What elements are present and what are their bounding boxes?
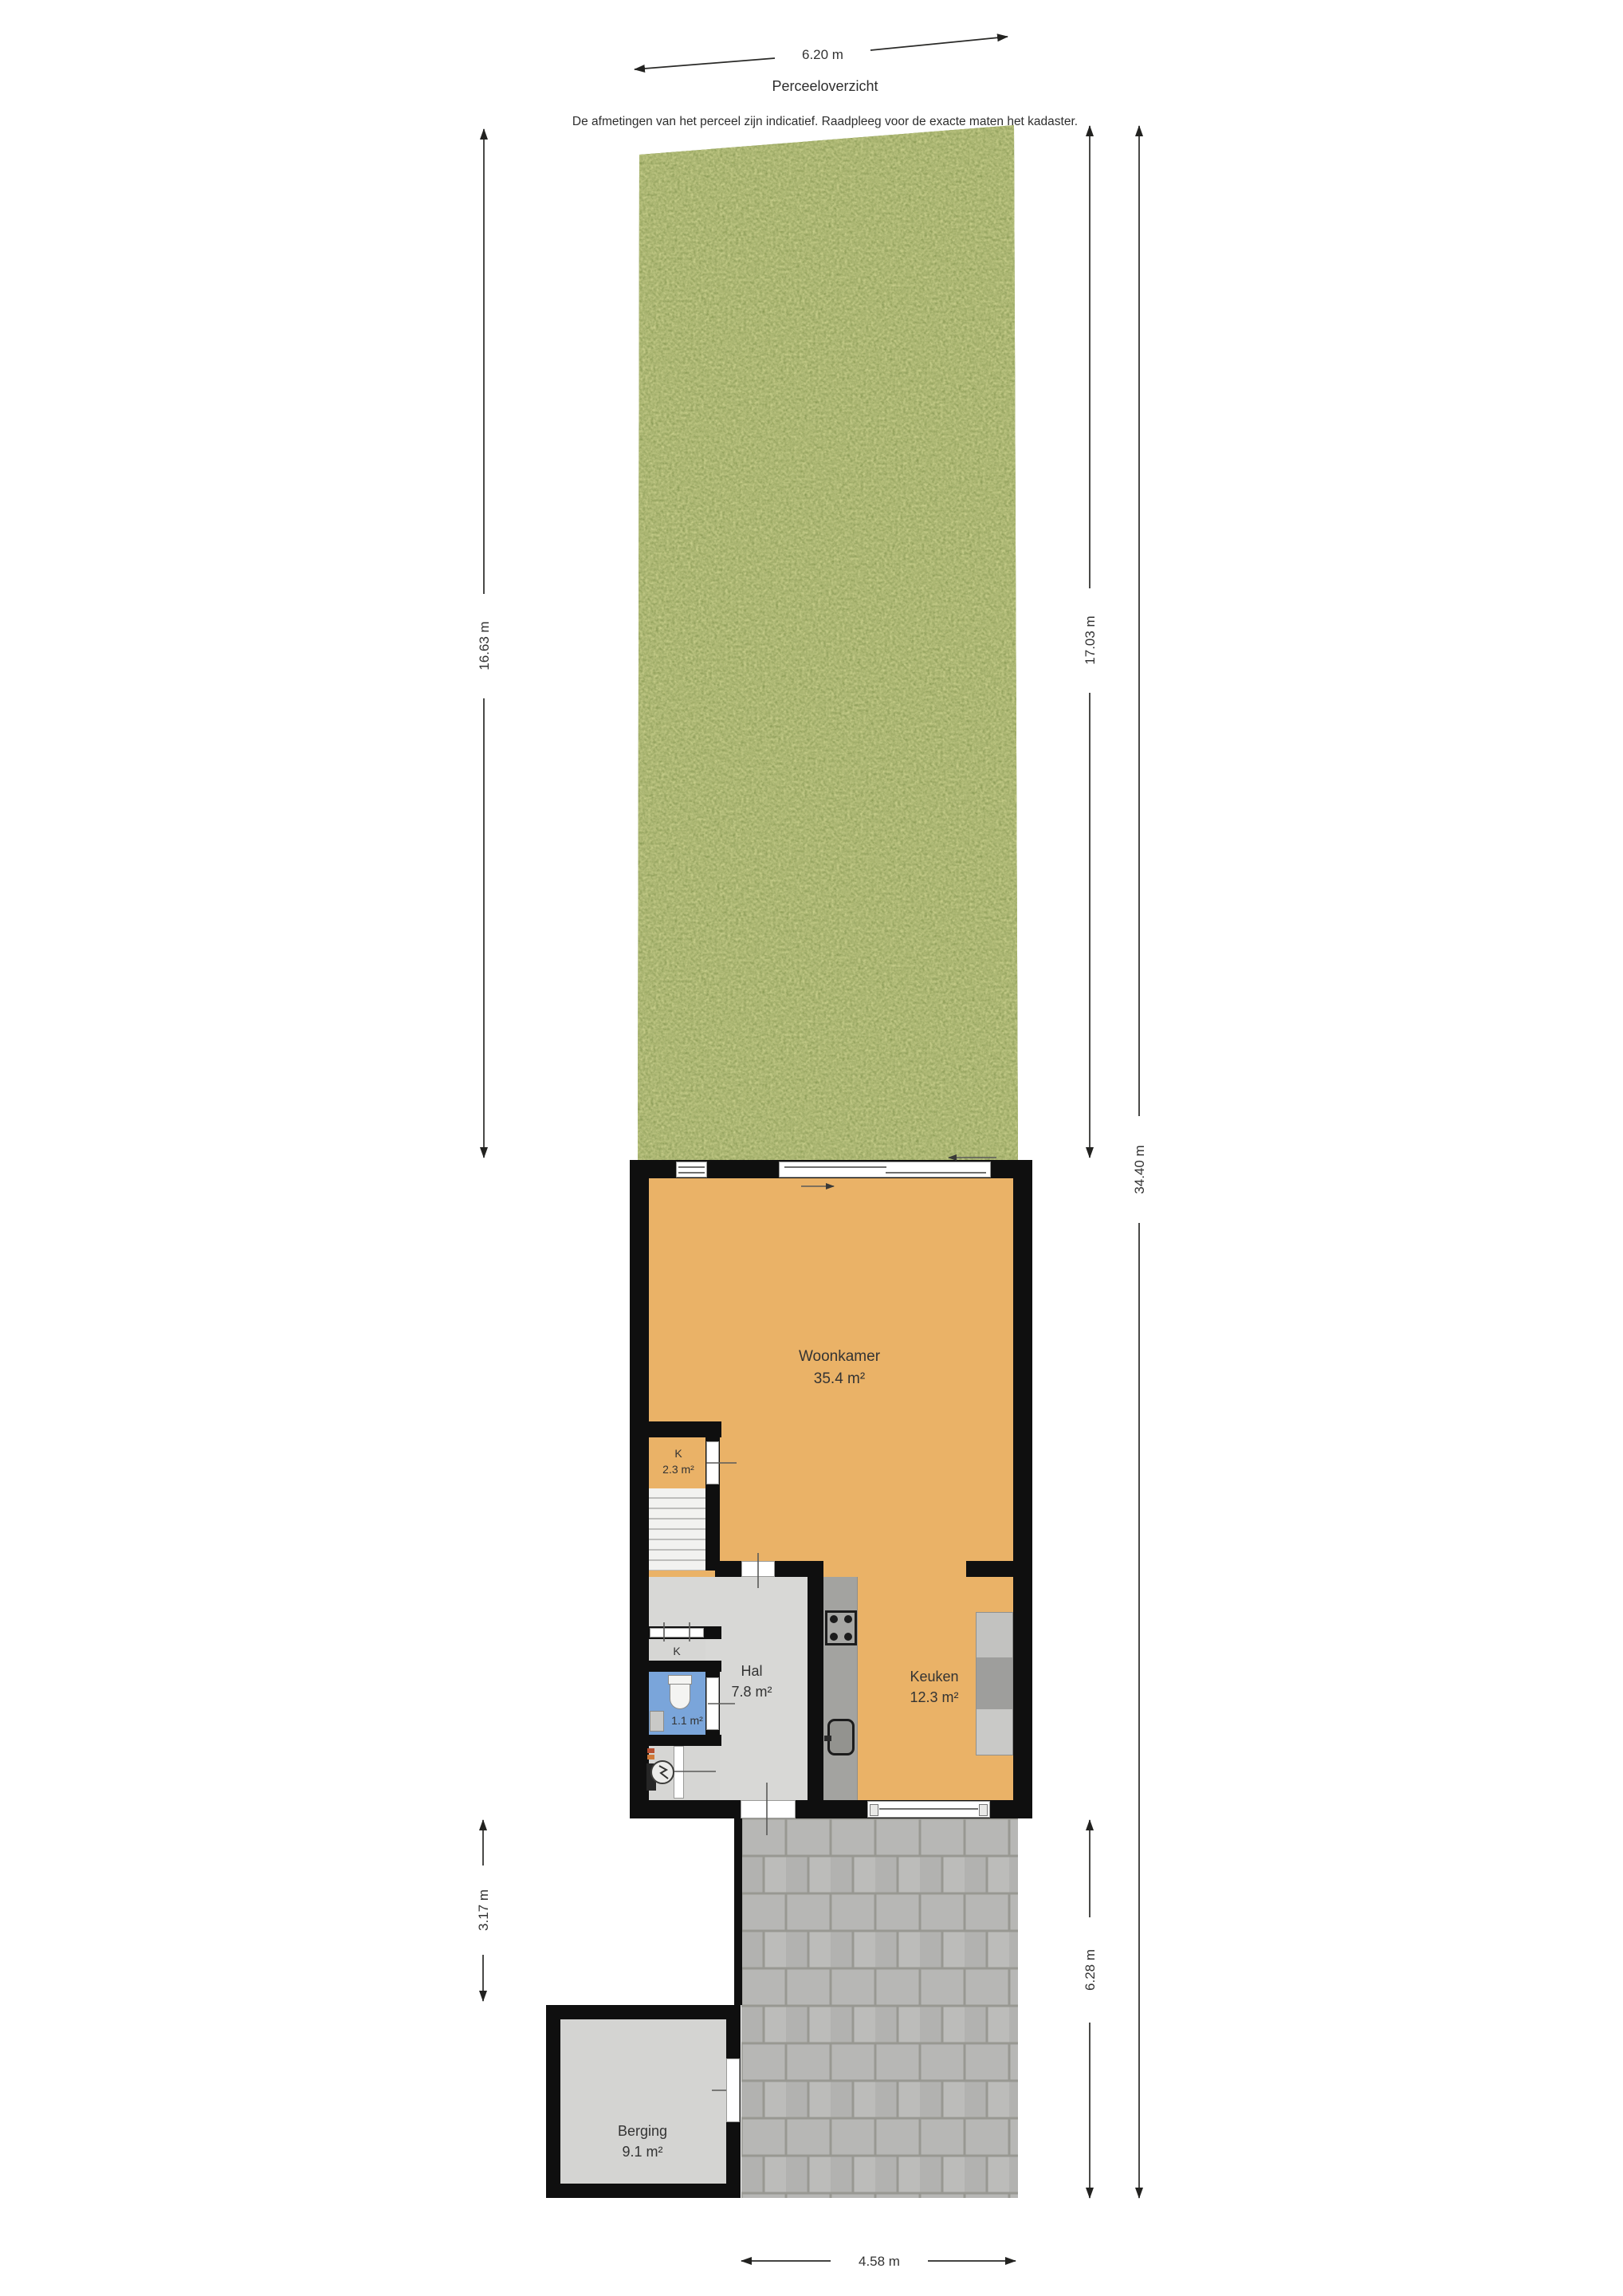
ground-layer [0,0,1623,2296]
closet-upper-area: 2.3 m² [646,1461,710,1477]
living-hall-wall-seg1 [715,1561,741,1577]
rear-window [676,1162,707,1177]
keuken-area: 12.3 m² [870,1687,998,1708]
keuken-name: Keuken [870,1666,998,1687]
disclaimer-text: De afmetingen van het perceel zijn indic… [426,115,1224,129]
closet-lower-doors [650,1628,704,1637]
hal-keuken-divider-wall [808,1561,823,1800]
closet-upper-name: K [646,1445,710,1461]
front-window [867,1801,990,1818]
living-kitchen-wall-stub [966,1561,1032,1577]
passage-boundary-wall [734,1818,742,2005]
berging-name: Berging [563,2121,722,2141]
rear-window-frame-line2 [678,1172,705,1174]
woonkamer-area: 35.4 m² [720,1368,959,1390]
front-window-cap-right [979,1804,988,1816]
toilet-label: 1.1 m² [658,1712,716,1728]
terrace-paving [741,1818,1018,2198]
burner [830,1615,838,1623]
closet-upper-label: K 2.3 m² [646,1445,710,1478]
front-window-cap-left [870,1804,878,1816]
meter-marker-orange [647,1755,654,1759]
toilet-meter-wall [630,1735,721,1746]
closet-lower-name: K [653,1643,701,1659]
burner [844,1633,852,1641]
stove-icon [825,1610,857,1645]
woonkamer-label: Woonkamer 35.4 m² [720,1346,959,1390]
burner [830,1633,838,1641]
hal-name: Hal [696,1661,808,1681]
hal-door [741,1561,775,1577]
distribution-panel [646,1763,656,1791]
toilet-area: 1.1 m² [658,1712,716,1728]
hal-area: 7.8 m² [696,1681,808,1702]
keuken-label: Keuken 12.3 m² [870,1666,998,1708]
meter-cabinet-floor [649,1746,720,1800]
page-title: Perceeloverzicht [586,78,1064,95]
berging-area: 9.1 m² [563,2141,722,2162]
front-window-line [879,1808,978,1810]
toilet-bowl-icon [670,1685,690,1709]
garden-grass [630,116,1028,1168]
woonkamer-name: Woonkamer [720,1346,959,1368]
appliance-block [977,1709,1012,1755]
front-door [741,1800,796,1818]
meter-cabinet-door [674,1746,684,1799]
appliance-block [977,1613,1012,1657]
burner [844,1615,852,1623]
faucet [824,1736,831,1741]
meter-marker-red [647,1748,654,1753]
parcel-plan-canvas: Perceeloverzicht De afmetingen van het p… [0,0,1623,2296]
kitchen-sink-icon [827,1719,855,1755]
staircase [649,1488,705,1571]
rear-window-frame-line [678,1166,705,1168]
rear-sliding-door [779,1162,991,1177]
closet-lower-label: K [653,1643,701,1659]
sliding-panel-line1 [784,1166,886,1168]
toilet-tank [668,1675,692,1685]
closet-upper-top-wall [630,1421,721,1437]
berging-door [726,2058,740,2122]
sliding-panel-line2 [886,1172,986,1174]
hal-label: Hal 7.8 m² [696,1661,808,1702]
berging-label: Berging 9.1 m² [563,2121,722,2162]
